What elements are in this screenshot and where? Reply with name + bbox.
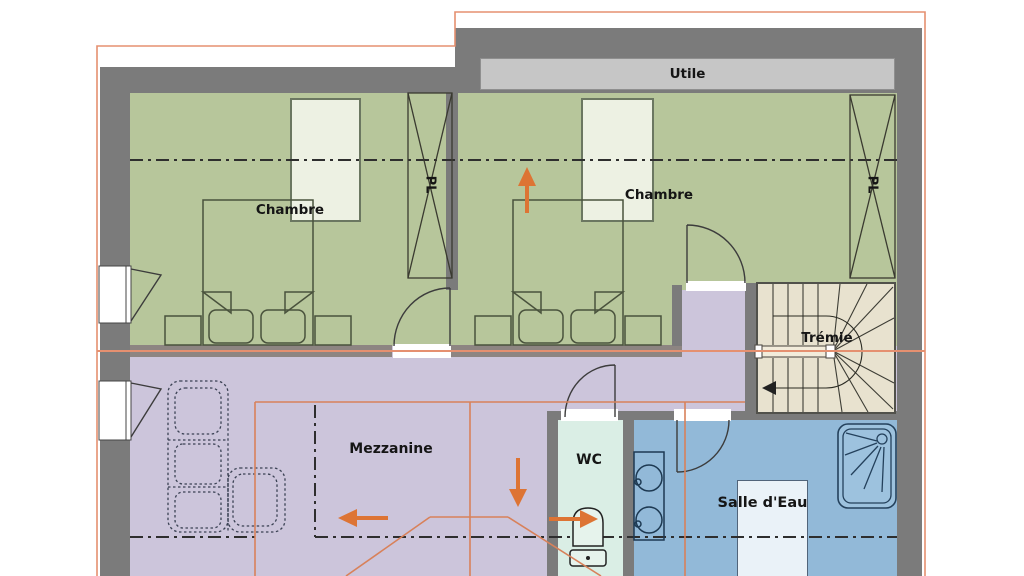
washbasins-icon xyxy=(634,452,664,540)
room-label-chambre1: Chambre xyxy=(240,202,340,218)
window-left-1 xyxy=(99,266,161,323)
orange-arrows xyxy=(338,167,598,528)
room-label-pl2: PL xyxy=(865,160,880,210)
room-label-chambre2: Chambre xyxy=(609,187,709,203)
bed-bedroom1 xyxy=(165,200,351,345)
floor-plan: Utile xyxy=(0,0,1024,576)
room-label-mezzanine: Mezzanine xyxy=(331,441,451,457)
bed-bedroom2 xyxy=(475,200,661,345)
room-label-pl1: PL xyxy=(423,160,438,210)
sofa xyxy=(168,381,285,532)
mezzanine-guide-lines xyxy=(255,402,745,576)
window-left-2 xyxy=(99,381,161,440)
room-label-salle-eau: Salle d'Eau xyxy=(695,495,830,511)
stairs-down-arrow-icon xyxy=(762,381,776,395)
shower-icon xyxy=(838,424,896,508)
stairs-treads xyxy=(755,284,894,412)
room-label-tremie: Trémie xyxy=(777,330,877,346)
plan-linework xyxy=(0,0,1024,576)
door-arcs xyxy=(394,225,745,472)
room-label-wc: WC xyxy=(558,452,620,468)
